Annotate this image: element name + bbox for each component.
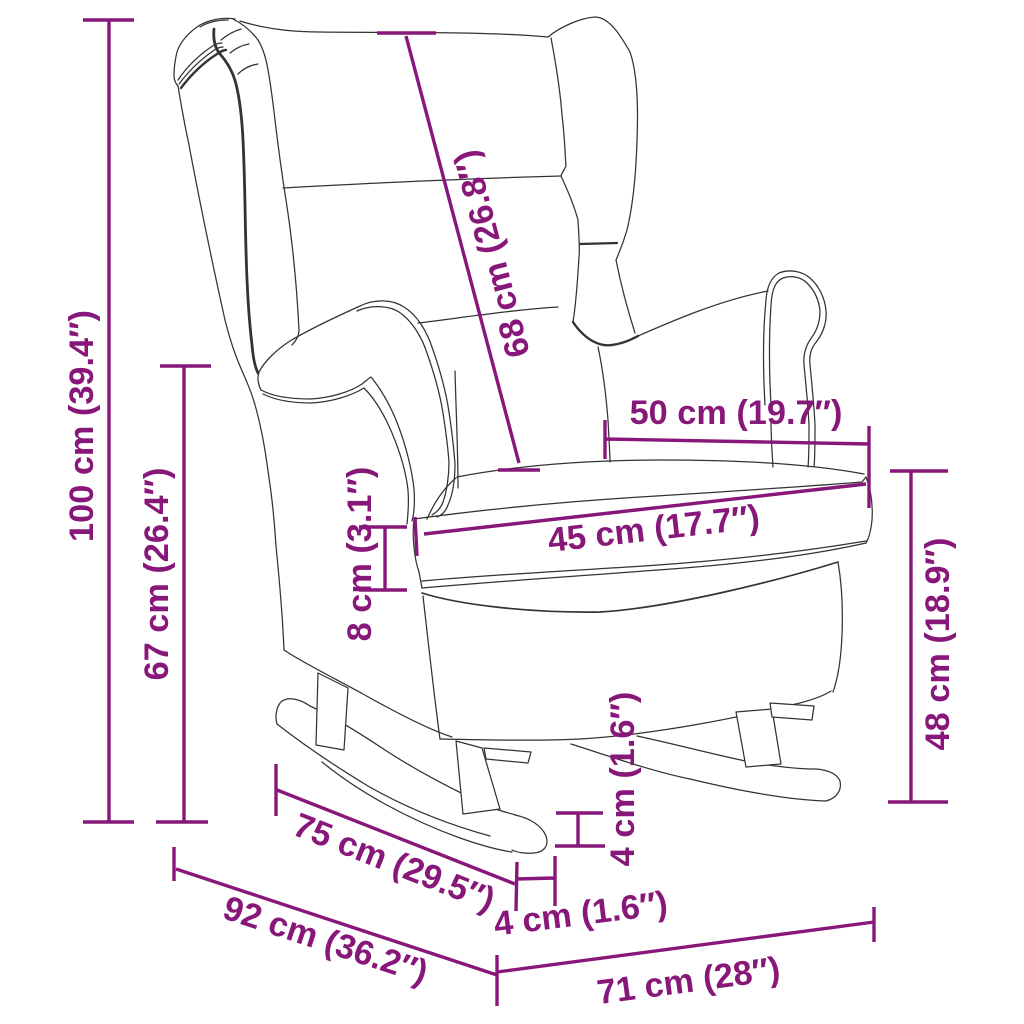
svg-text:4 cm (1.6″): 4 cm (1.6″) — [604, 692, 642, 867]
svg-text:48 cm (18.9″): 48 cm (18.9″) — [919, 538, 957, 751]
svg-text:8 cm (3.1″): 8 cm (3.1″) — [341, 467, 379, 642]
svg-text:50 cm (19.7″): 50 cm (19.7″) — [630, 394, 843, 432]
svg-text:67 cm (26.4″): 67 cm (26.4″) — [138, 468, 176, 681]
svg-text:100 cm (39.4″): 100 cm (39.4″) — [63, 310, 101, 542]
